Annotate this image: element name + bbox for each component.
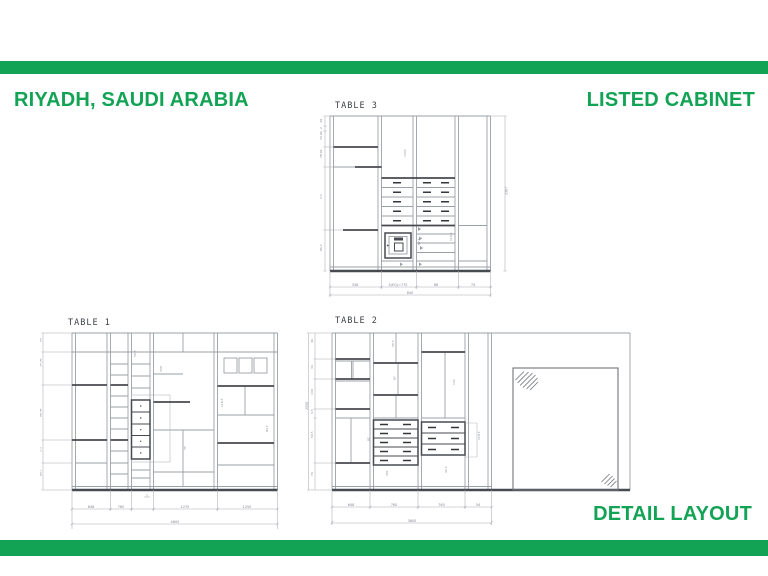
dim-label: 118.5 [477,431,481,440]
drawer-stack-right [422,422,466,455]
dim-label: 3.3 [40,447,43,452]
dim-label: 4.5 [310,409,314,414]
dim-label: 54 [476,503,480,507]
dim-label: 2550 [305,402,309,410]
dim-label: 130 [310,389,314,395]
safe-box [385,233,411,258]
dim-label: 1250 [243,505,252,509]
dim-label: 118.5 [449,232,453,241]
dim-label: 338 [352,283,358,287]
table2-label: TABLE 2 [335,316,378,326]
dim-label: 761 [385,470,389,476]
table3-drawing: TABLE 3 40 2 34.06 78.94 3.3 86.7 2 [315,95,515,305]
dim-label: 86.7 [40,469,43,476]
dim-label: 34 [310,365,314,369]
mirror-hatch-top-left [516,372,539,391]
dim-label: 1270 [181,505,190,509]
dim-label: 330 [159,366,163,372]
dim-label: 2387 [505,187,509,195]
dim-label: 40 [40,338,43,342]
drawer-handles [393,183,449,221]
dim-label: 43.5 [444,466,448,473]
dim-label: 87 [393,376,397,380]
upper-boxes [224,358,267,373]
dim-label: 34.06 [40,358,43,367]
table1-linework [72,333,278,490]
location-heading: RIYADH, SAUDI ARABIA [14,89,249,112]
dim-label: 760 [118,505,124,509]
dim-label: 760 [391,503,397,507]
dim-label: 46 [310,339,314,343]
dim-label: 3.3 [319,194,323,199]
page-title: LISTED CABINET [587,89,755,112]
dim-label: 87 [367,437,371,441]
dim-label: 135 [452,379,456,385]
mirror-hatch-bottom-right [602,474,617,487]
dim-label: 87.5 [417,238,421,245]
dim-label: 4(EQ)=775 [389,283,408,287]
dim-label: 840 [407,291,413,295]
dim-label: 648 [348,503,354,507]
top-green-bar [0,61,768,74]
table1-label: TABLE 1 [68,318,111,328]
dim-label: 86.7 [319,244,323,251]
table2-linework [332,333,630,490]
dim-label: 648 [88,505,94,509]
slide: RIYADH, SAUDI ARABIA LISTED CABINET TABL… [0,0,768,576]
dim-label: 1333 [403,149,407,157]
dim-label: 74 [471,283,475,287]
dim-label: 74 [310,472,314,476]
dim-label: 78.94 [319,149,323,158]
callout-bracket [465,423,477,457]
dim-label: 3600 [408,519,417,523]
dim-label: 88 [434,283,438,287]
table1-drawing: TABLE 1 40 34.06 [40,312,305,537]
dim-label: 75 [183,446,187,450]
table3-linework [330,116,491,271]
dim-label: 50.5 [133,350,137,357]
mirror-panel [513,368,618,490]
table2-drawing: TABLE 2 2550 46 [305,310,640,532]
dim-label: 98.94 [40,408,43,417]
table3-label: TABLE 3 [335,101,378,111]
dim-label: 84.7 [265,425,269,432]
drawer-stack [132,400,151,459]
bottom-green-bar [0,540,768,556]
dim-label: 4600 [171,520,180,524]
dim-label: 40 [319,119,323,123]
dim-label: 50.5 [310,431,314,438]
dim-label: 34.06 [319,131,323,140]
drawer-stack-left [374,420,419,465]
dim-label: 2 [319,127,323,129]
dim-label: 50.5 [391,340,395,347]
dim-label: 760 [438,503,444,507]
dim-label: 118.5 [220,398,224,407]
footer-label: DETAIL LAYOUT [593,503,752,526]
